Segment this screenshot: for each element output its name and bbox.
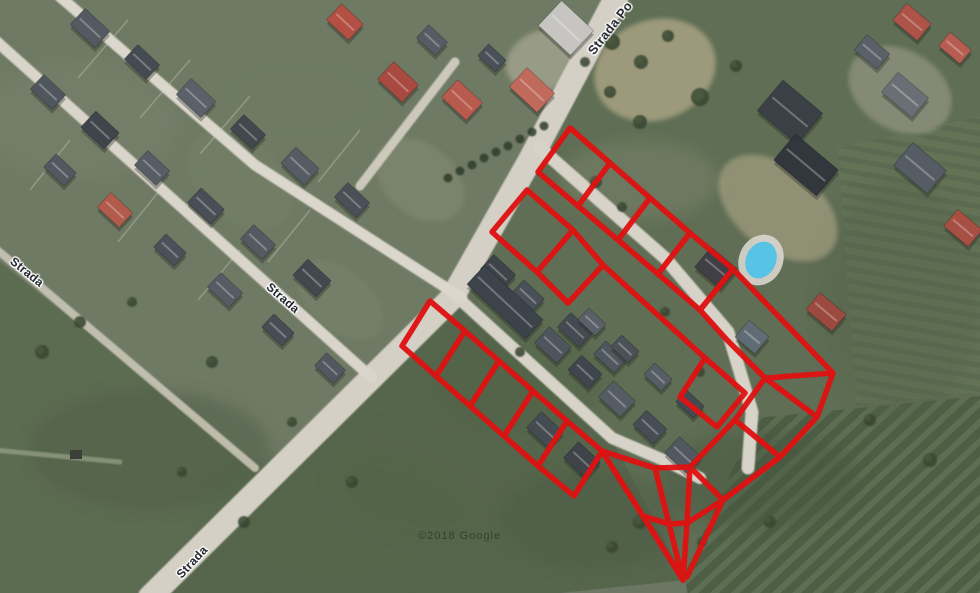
field-shed [70, 450, 82, 459]
satellite-map[interactable] [0, 0, 980, 593]
map-viewport[interactable]: Strada PoStradaStradaStrada ©2018 Google [0, 0, 980, 593]
